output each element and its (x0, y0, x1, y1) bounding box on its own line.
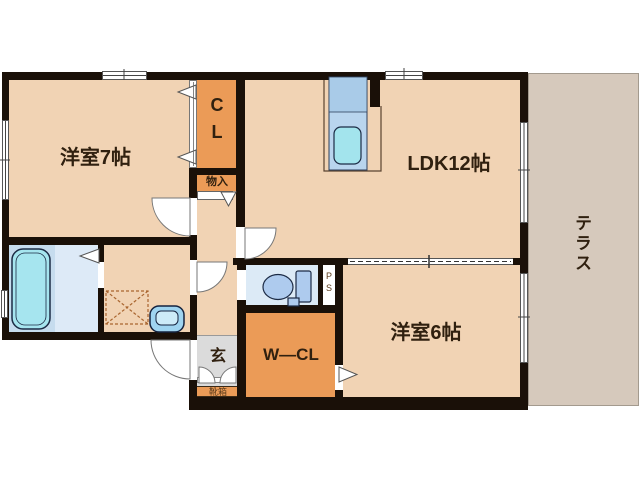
kitchen-counter-top (329, 77, 367, 112)
ldk-door-arc (245, 228, 276, 259)
shoe-cabinet-door-arc-left (199, 367, 215, 383)
closet-label: CL (206, 92, 228, 146)
entrance-label: 玄 (207, 348, 229, 366)
bathtub (12, 249, 50, 329)
plan-symbols-layer (0, 0, 640, 480)
room6-label: 洋室6帖 (370, 322, 482, 345)
storage-door-triangle (221, 192, 236, 206)
terrace-label: テラス (565, 204, 591, 284)
bath-door-triangle (80, 249, 99, 263)
window-glyphs (0, 68, 530, 362)
walk-in-closet-label: W—CL (248, 345, 334, 365)
ldk-label: LDK12帖 (393, 153, 505, 176)
washing-machine-pan (106, 291, 148, 324)
entrance-door-arc (151, 340, 190, 379)
kitchen-sink (334, 127, 361, 164)
room7-label: 洋室7帖 (38, 147, 153, 170)
shoe-cabinet-door-arc-right (220, 367, 236, 383)
washroom-sink-basin (156, 311, 178, 325)
storage-label: 物入 (199, 176, 235, 189)
washroom-door-arc (197, 262, 227, 292)
toilet (263, 271, 311, 306)
pipe-space-label: PS (324, 271, 334, 294)
floor-plan: 洋室7帖 LDK12帖 洋室6帖 CL 物入 テラス W—CL 玄 靴箱 PS (0, 0, 640, 480)
room7-door-arc (152, 198, 190, 236)
shoe-cabinet-label: 靴箱 (203, 387, 233, 397)
wcl-door-triangle (339, 367, 357, 382)
sliding-door-symbol (348, 255, 513, 268)
